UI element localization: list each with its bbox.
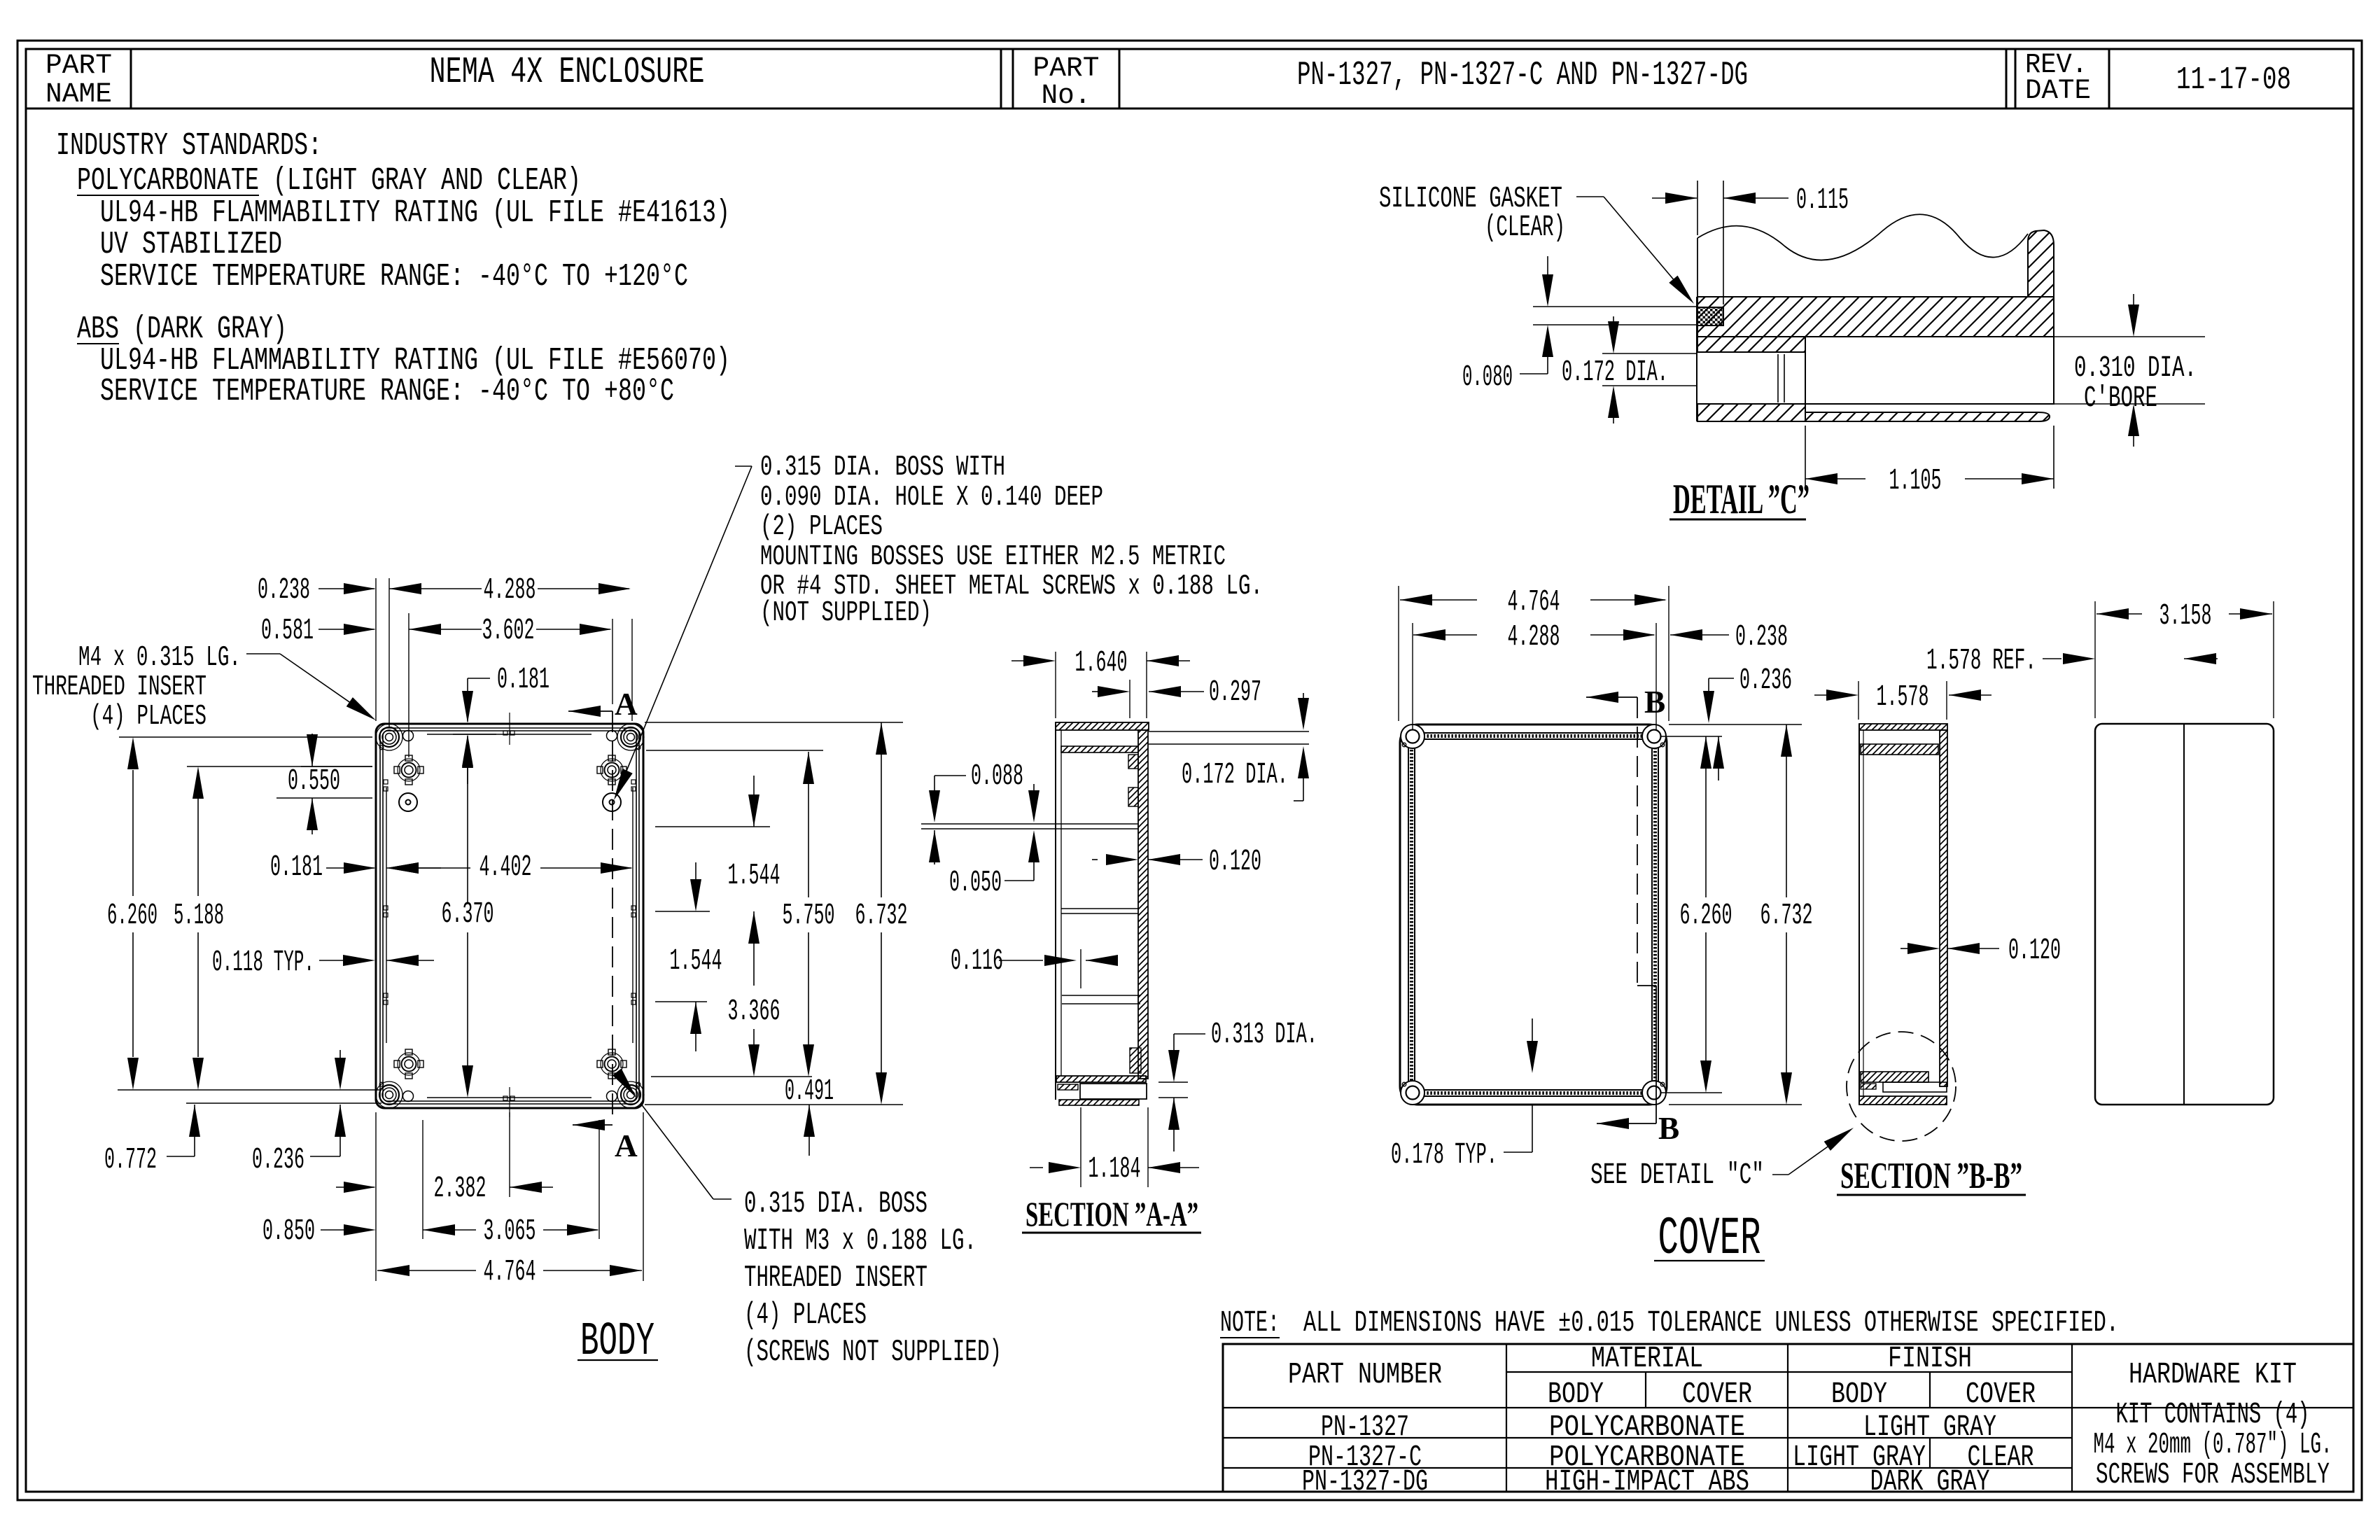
svg-text:(2) PLACES: (2) PLACES [760,511,883,543]
svg-text:0.236: 0.236 [1739,664,1792,697]
svg-text:3.065: 3.065 [484,1214,536,1248]
svg-text:1.544: 1.544 [670,944,722,978]
svg-text:(NOT SUPPLIED): (NOT SUPPLIED) [760,597,932,629]
svg-text:0.118 TYP.: 0.118 TYP. [212,946,314,979]
svg-text:0.181: 0.181 [270,850,323,884]
svg-text:6.732: 6.732 [1760,899,1813,932]
svg-text:BODY: BODY [1831,1378,1887,1411]
svg-text:4.288: 4.288 [1508,620,1560,654]
svg-text:6.260: 6.260 [107,899,157,932]
svg-text:0.850: 0.850 [262,1214,315,1248]
svg-text:5.750: 5.750 [783,899,835,932]
svg-text:B: B [1658,1111,1679,1146]
svg-text:1.544: 1.544 [728,859,780,892]
svg-text:SERVICE TEMPERATURE RANGE: -40: SERVICE TEMPERATURE RANGE: -40°C TO +80°… [100,373,674,409]
svg-text:B: B [1644,685,1665,720]
svg-text:1.640: 1.640 [1075,646,1128,680]
svg-text:6.260: 6.260 [1680,899,1732,932]
svg-text:HIGH-IMPACT ABS: HIGH-IMPACT ABS [1545,1465,1749,1499]
svg-text:PN-1327-DG: PN-1327-DG [1302,1465,1428,1499]
svg-text:3.158: 3.158 [2159,599,2212,633]
svg-text:5.188: 5.188 [174,899,224,932]
svg-text:PN-1327, PN-1327-C AND PN-1327: PN-1327, PN-1327-C AND PN-1327-DG [1297,56,1748,94]
svg-text:M4 x 0.315 LG.: M4 x 0.315 LG. [78,642,241,674]
svg-text:PN-1327: PN-1327 [1321,1410,1409,1444]
svg-text:(SCREWS NOT SUPPLIED): (SCREWS NOT SUPPLIED) [744,1335,1002,1370]
svg-text:0.581: 0.581 [261,614,314,647]
svg-text:NOTE:: NOTE: [1220,1306,1280,1340]
svg-text:0.172 DIA.: 0.172 DIA. [1562,356,1668,389]
svg-text:0.297: 0.297 [1209,675,1261,709]
svg-text:COVER: COVER [1966,1378,2036,1411]
svg-text:KIT CONTAINS (4): KIT CONTAINS (4) [2116,1398,2310,1431]
svg-text:0.172 DIA.: 0.172 DIA. [1182,758,1288,792]
svg-text:DATE: DATE [2025,75,2091,106]
svg-text:INDUSTRY STANDARDS:: INDUSTRY STANDARDS: [56,127,322,164]
svg-text:SECTION ”A-A”: SECTION ”A-A” [1025,1195,1198,1233]
svg-text:MATERIAL: MATERIAL [1591,1342,1703,1375]
svg-text:SEE DETAIL ″C″: SEE DETAIL ″C″ [1590,1158,1764,1192]
svg-text:0.050: 0.050 [949,866,1002,899]
svg-text:3.366: 3.366 [728,995,780,1028]
svg-text:(4) PLACES: (4) PLACES [744,1298,867,1333]
svg-text:C'BORE: C'BORE [2084,381,2157,415]
svg-text:(CLEAR): (CLEAR) [1485,211,1565,244]
svg-text:0.310 DIA.: 0.310 DIA. [2074,351,2197,385]
svg-text:0.315 DIA. BOSS: 0.315 DIA. BOSS [744,1186,927,1221]
svg-text:POLYCARBONATE: POLYCARBONATE [1549,1410,1745,1444]
svg-text:0.116: 0.116 [951,944,1003,978]
svg-text:4.764: 4.764 [484,1255,536,1289]
svg-text:NAME: NAME [45,78,112,110]
svg-text:0.315 DIA. BOSS WITH: 0.315 DIA. BOSS WITH [760,451,1005,484]
svg-text:ALL DIMENSIONS HAVE ±0.015 TOL: ALL DIMENSIONS HAVE ±0.015 TOLERANCE UNL… [1303,1306,2119,1340]
svg-text:NEMA 4X ENCLOSURE: NEMA 4X ENCLOSURE [430,51,705,93]
svg-text:1.105: 1.105 [1889,464,1942,498]
svg-text:SERVICE TEMPERATURE RANGE: -40: SERVICE TEMPERATURE RANGE: -40°C TO +120… [100,258,688,295]
svg-text:LIGHT GRAY: LIGHT GRAY [1863,1410,1996,1444]
svg-text:0.120: 0.120 [1209,845,1261,878]
svg-text:0.090 DIA. HOLE X 0.140 DEEP: 0.090 DIA. HOLE X 0.140 DEEP [760,482,1103,514]
svg-text:DARK GRAY: DARK GRAY [1870,1465,1990,1499]
svg-text:0.236: 0.236 [252,1143,304,1177]
svg-text:0.115: 0.115 [1796,183,1849,217]
svg-text:3.602: 3.602 [482,614,535,647]
svg-text:1.578 REF.: 1.578 REF. [1926,644,2036,678]
svg-text:0.080: 0.080 [1462,360,1513,394]
svg-text:PART: PART [45,50,112,81]
svg-text:A: A [615,687,638,722]
svg-text:DETAIL ”C”: DETAIL ”C” [1673,476,1809,523]
svg-text:THREADED INSERT: THREADED INSERT [744,1261,927,1296]
svg-text:4.288: 4.288 [484,573,536,607]
svg-text:2.382: 2.382 [434,1172,486,1205]
svg-text:0.313 DIA.: 0.313 DIA. [1211,1018,1317,1051]
svg-text:HARDWARE KIT: HARDWARE KIT [2129,1358,2297,1392]
svg-text:FINISH: FINISH [1888,1342,1972,1375]
svg-text:SECTION ”B-B”: SECTION ”B-B” [1840,1156,2022,1196]
svg-text:0.178 TYP.: 0.178 TYP. [1391,1138,1497,1172]
svg-text:0.238: 0.238 [1735,620,1788,654]
svg-text:MOUNTING BOSSES USE EITHER M2.: MOUNTING BOSSES USE EITHER M2.5 METRIC [760,541,1226,573]
svg-text:COVER: COVER [1682,1378,1752,1411]
svg-text:PART NUMBER: PART NUMBER [1288,1358,1442,1392]
svg-text:0.550: 0.550 [288,764,340,798]
svg-text:BODY: BODY [1548,1378,1604,1411]
svg-text:SCREWS FOR ASSEMBLY: SCREWS FOR ASSEMBLY [2096,1458,2330,1492]
svg-text:6.370: 6.370 [442,897,494,931]
svg-text:No.: No. [1042,80,1091,111]
svg-text:UV STABILIZED: UV STABILIZED [100,226,282,262]
svg-text:(4) PLACES: (4) PLACES [90,701,206,733]
svg-text:6.732: 6.732 [855,899,908,932]
svg-text:1.184: 1.184 [1088,1152,1141,1186]
svg-text:1.578: 1.578 [1877,680,1929,714]
svg-text:0.238: 0.238 [258,573,310,607]
svg-text:WITH M3 x 0.188 LG.: WITH M3 x 0.188 LG. [744,1224,976,1259]
svg-text:POLYCARBONATE (LIGHT GRAY AND: POLYCARBONATE (LIGHT GRAY AND CLEAR) [77,162,581,199]
svg-text:0.772: 0.772 [104,1143,157,1177]
svg-text:0.181: 0.181 [497,663,549,696]
svg-text:0.120: 0.120 [2008,934,2061,967]
svg-text:4.764: 4.764 [1508,585,1560,619]
svg-text:THREADED INSERT: THREADED INSERT [32,671,206,703]
svg-text:11-17-08: 11-17-08 [2176,62,2291,98]
svg-text:0.491: 0.491 [785,1074,834,1108]
svg-text:M4 x 20mm (0.787″) LG.: M4 x 20mm (0.787″) LG. [2094,1428,2332,1462]
svg-text:A: A [615,1128,638,1163]
svg-text:0.088: 0.088 [971,759,1023,793]
svg-text:4.402: 4.402 [479,850,532,884]
